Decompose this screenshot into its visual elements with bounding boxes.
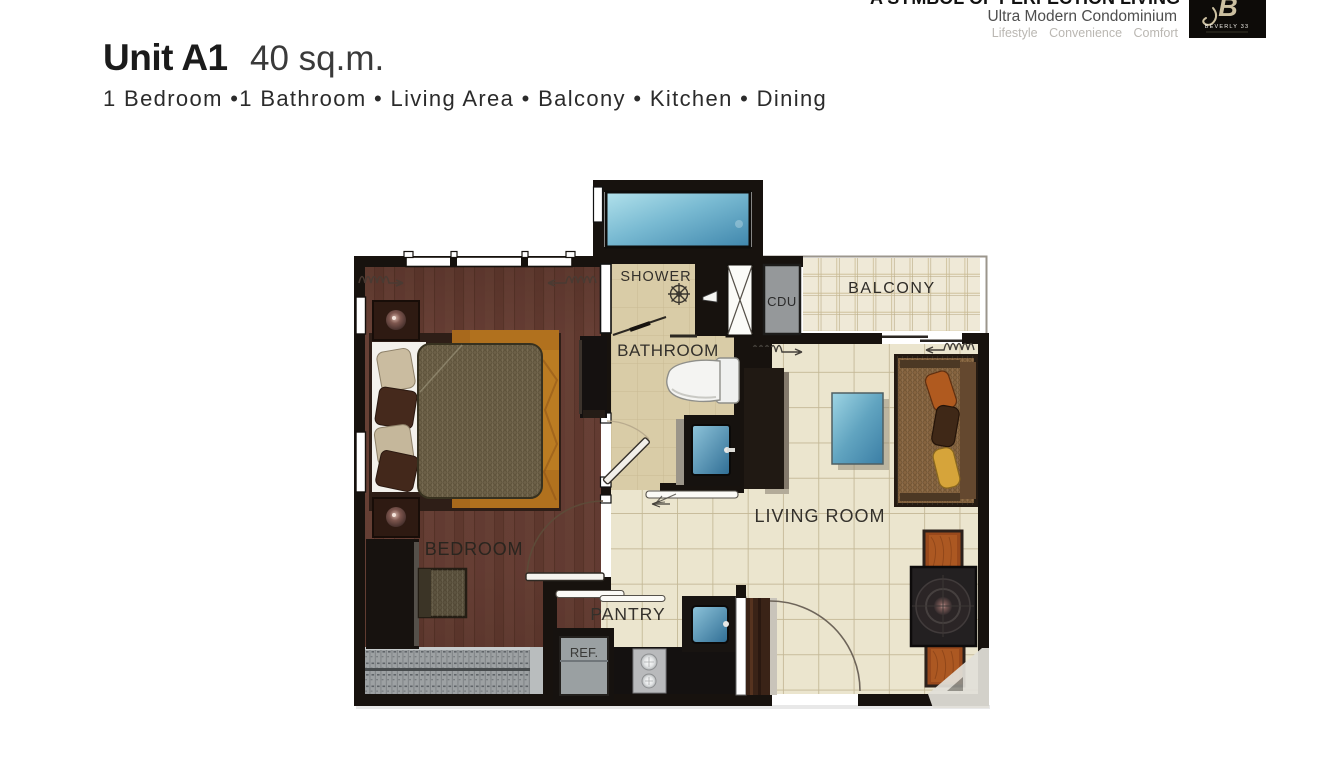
svg-text:Lifestyle Convenience Comfort: Lifestyle Convenience Comfort — [992, 26, 1179, 40]
svg-text:A SYMBOL OF PERFECTION LIVING: A SYMBOL OF PERFECTION LIVING — [870, 0, 1180, 8]
svg-text:REF.: REF. — [570, 645, 598, 660]
svg-text:BEVERLY 33: BEVERLY 33 — [1205, 24, 1250, 30]
svg-text:B: B — [1218, 0, 1238, 22]
svg-text:SHOWER: SHOWER — [620, 269, 691, 285]
svg-text:BALCONY: BALCONY — [848, 280, 936, 297]
svg-text:LIVING ROOM: LIVING ROOM — [754, 506, 885, 526]
svg-text:PANTRY: PANTRY — [590, 604, 665, 624]
svg-text:Ultra Modern Condominium: Ultra Modern Condominium — [987, 8, 1177, 25]
svg-text:1 Bedroom •1 Bathroom • Living: 1 Bedroom •1 Bathroom • Living Area • Ba… — [103, 86, 827, 111]
svg-text:BEDROOM: BEDROOM — [425, 539, 524, 559]
svg-text:Unit A1: Unit A1 — [103, 37, 228, 78]
svg-text:CDU: CDU — [767, 294, 797, 309]
svg-text:40 sq.m.: 40 sq.m. — [250, 39, 384, 78]
svg-text:BATHROOM: BATHROOM — [617, 341, 719, 360]
